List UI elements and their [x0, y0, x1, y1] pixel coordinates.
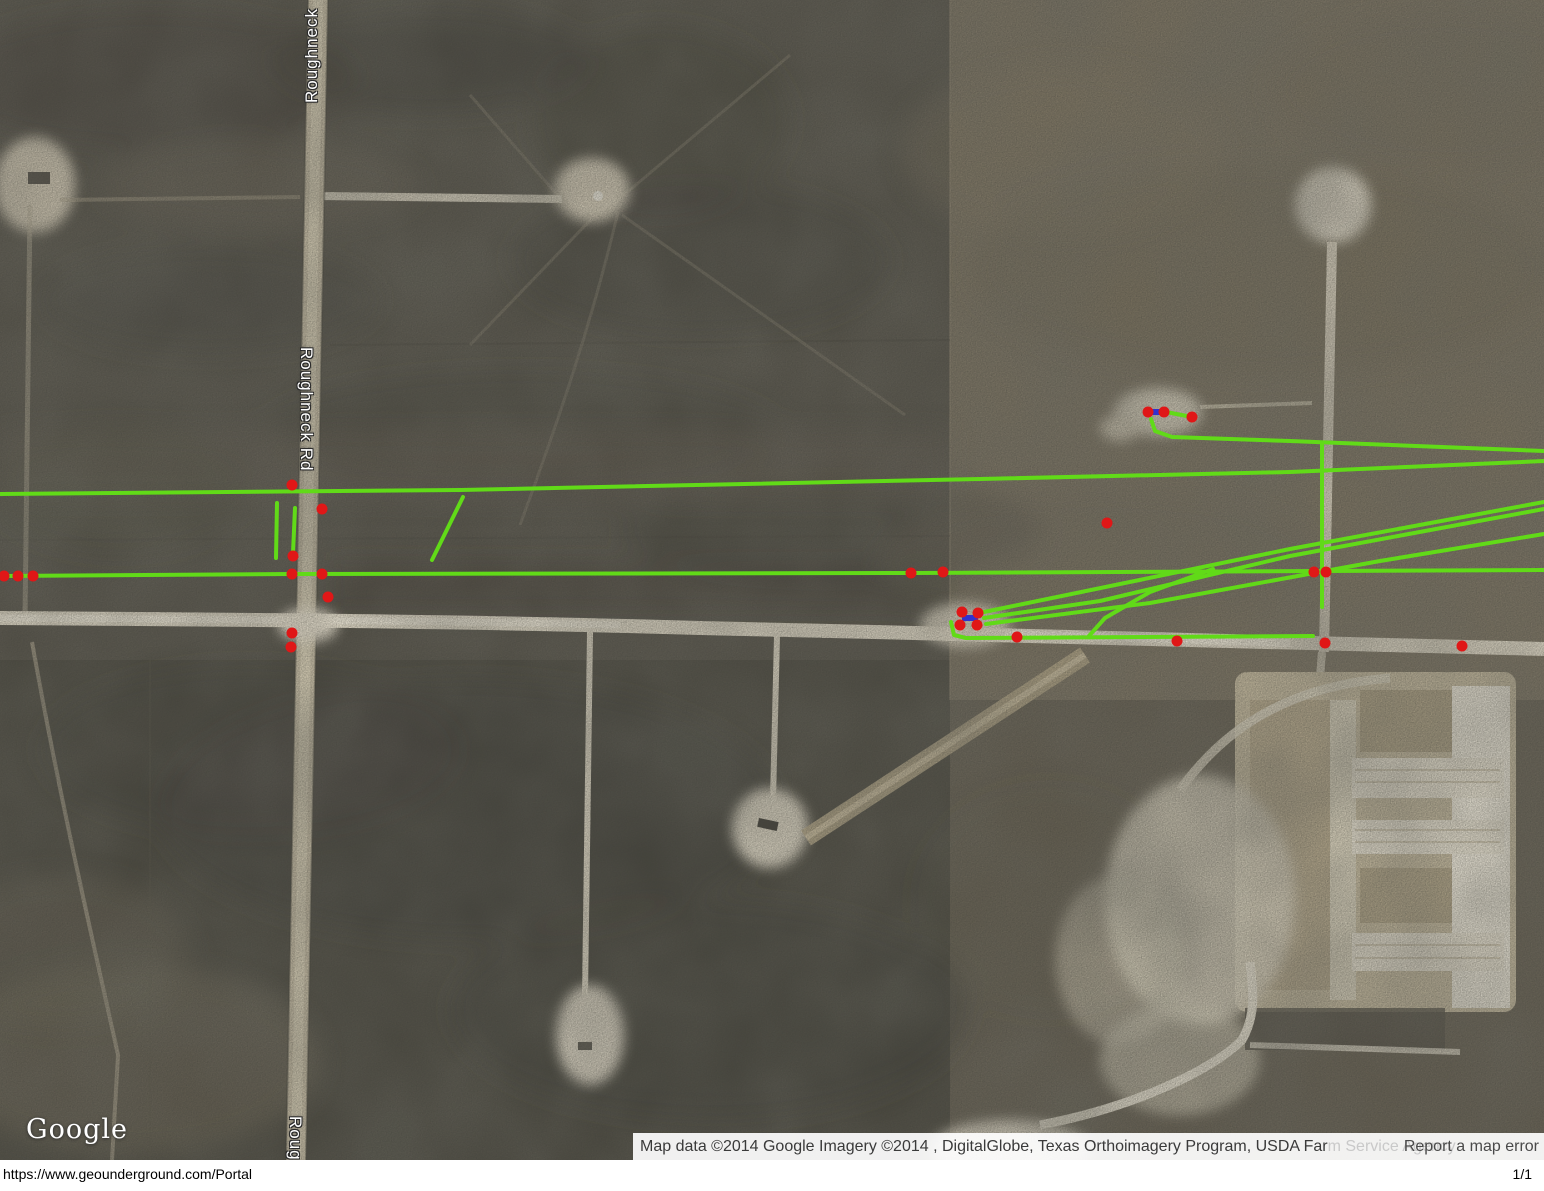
utility-marker[interactable] [28, 571, 39, 582]
attribution-bar: Map data ©2014 Google Imagery ©2014 , Di… [633, 1133, 1544, 1160]
utility-marker[interactable] [1102, 518, 1113, 529]
footer-page-indicator: 1/1 [1513, 1166, 1532, 1182]
pipeline-ne-lateral[interactable] [1151, 419, 1544, 451]
pipeline-stub-left-b[interactable] [293, 508, 295, 553]
utility-marker[interactable] [317, 569, 328, 580]
utility-marker[interactable] [972, 620, 983, 631]
pipeline-stub-diagonal[interactable] [432, 497, 463, 560]
utility-marker[interactable] [957, 607, 968, 618]
road-label-roughneck-bottom: Roughneck Rd [285, 1116, 305, 1160]
utility-marker[interactable] [286, 642, 297, 653]
pipeline-bundle-c[interactable] [986, 534, 1544, 624]
print-footer: https://www.geounderground.com/Portal 1/… [0, 1160, 1544, 1191]
utility-marker[interactable] [288, 551, 299, 562]
utility-marker[interactable] [973, 608, 984, 619]
utility-marker[interactable] [1320, 638, 1331, 649]
utility-marker[interactable] [317, 504, 328, 515]
utility-marker[interactable] [906, 568, 917, 579]
pipeline-upper-long[interactable] [0, 461, 1544, 494]
utility-marker[interactable] [1012, 632, 1023, 643]
utility-marker[interactable] [323, 592, 334, 603]
map-viewport[interactable]: Roughneck Roughneck Rd Roughneck Rd Goog… [0, 0, 1544, 1160]
utility-marker[interactable] [13, 571, 24, 582]
utility-marker[interactable] [0, 571, 10, 582]
pipelines-overlay [0, 0, 1544, 1160]
utility-marker[interactable] [1457, 641, 1468, 652]
utility-marker[interactable] [287, 628, 298, 639]
utility-marker[interactable] [1159, 407, 1170, 418]
google-logo: Google [26, 1114, 128, 1145]
pipeline-bundle-a[interactable] [984, 502, 1544, 612]
report-map-error-link[interactable]: Report a map error [1404, 1133, 1539, 1160]
attribution-text: Map data ©2014 Google Imagery ©2014 , Di… [633, 1138, 1328, 1155]
pipeline-bundle-b[interactable] [984, 509, 1544, 618]
utility-marker[interactable] [1187, 412, 1198, 423]
road-label-roughneck-mid: Roughneck Rd [296, 347, 316, 471]
utility-marker[interactable] [938, 567, 949, 578]
pipeline-pad-lateral[interactable] [951, 622, 1313, 638]
utility-marker[interactable] [287, 480, 298, 491]
printed-page: Roughneck Roughneck Rd Roughneck Rd Goog… [0, 0, 1544, 1191]
utility-marker[interactable] [287, 569, 298, 580]
utility-marker[interactable] [1172, 636, 1183, 647]
pipeline-stub-left-a[interactable] [276, 503, 277, 558]
utility-marker[interactable] [955, 620, 966, 631]
road-label-roughneck-top: Roughneck [302, 8, 322, 103]
utility-marker[interactable] [1321, 567, 1332, 578]
footer-url: https://www.geounderground.com/Portal [3, 1166, 252, 1182]
utility-marker[interactable] [1143, 407, 1154, 418]
utility-marker[interactable] [1309, 567, 1320, 578]
